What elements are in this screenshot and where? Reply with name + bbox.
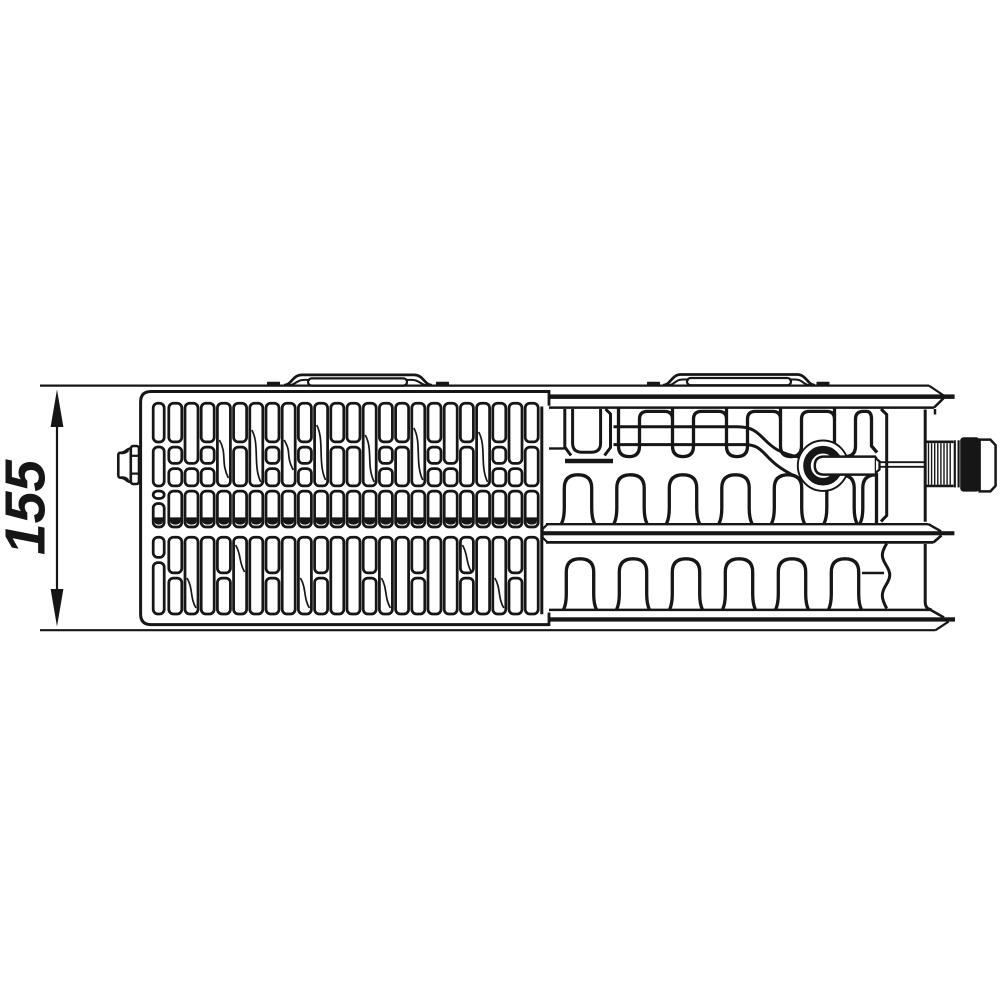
svg-text:155: 155 <box>0 459 58 555</box>
